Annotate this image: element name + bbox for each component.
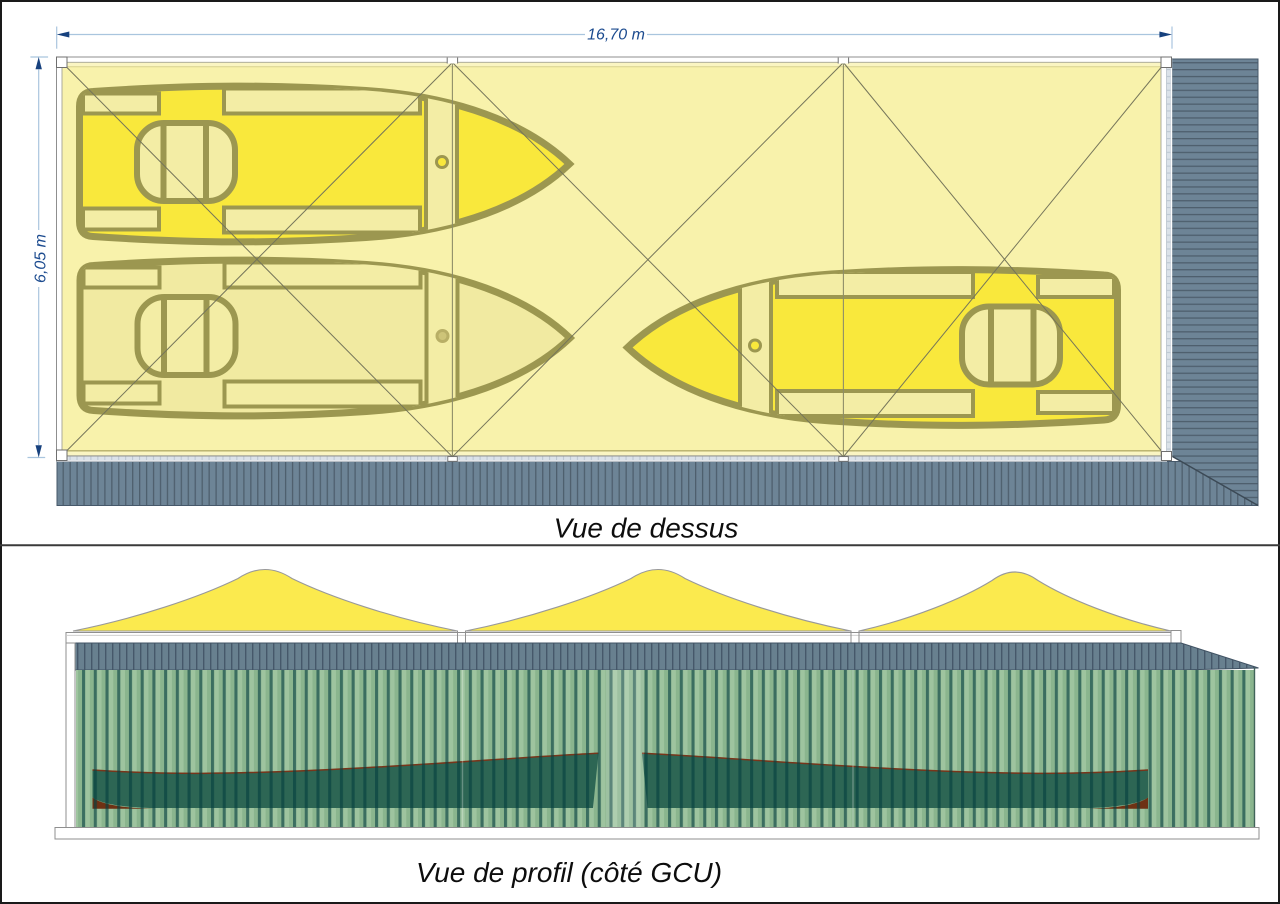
- svg-text:Vue de dessus: Vue de dessus: [554, 513, 739, 544]
- svg-text:16,70 m: 16,70 m: [587, 27, 645, 44]
- svg-text:Vue de profil (côté GCU): Vue de profil (côté GCU): [416, 857, 722, 888]
- svg-text:6,05 m: 6,05 m: [33, 234, 50, 283]
